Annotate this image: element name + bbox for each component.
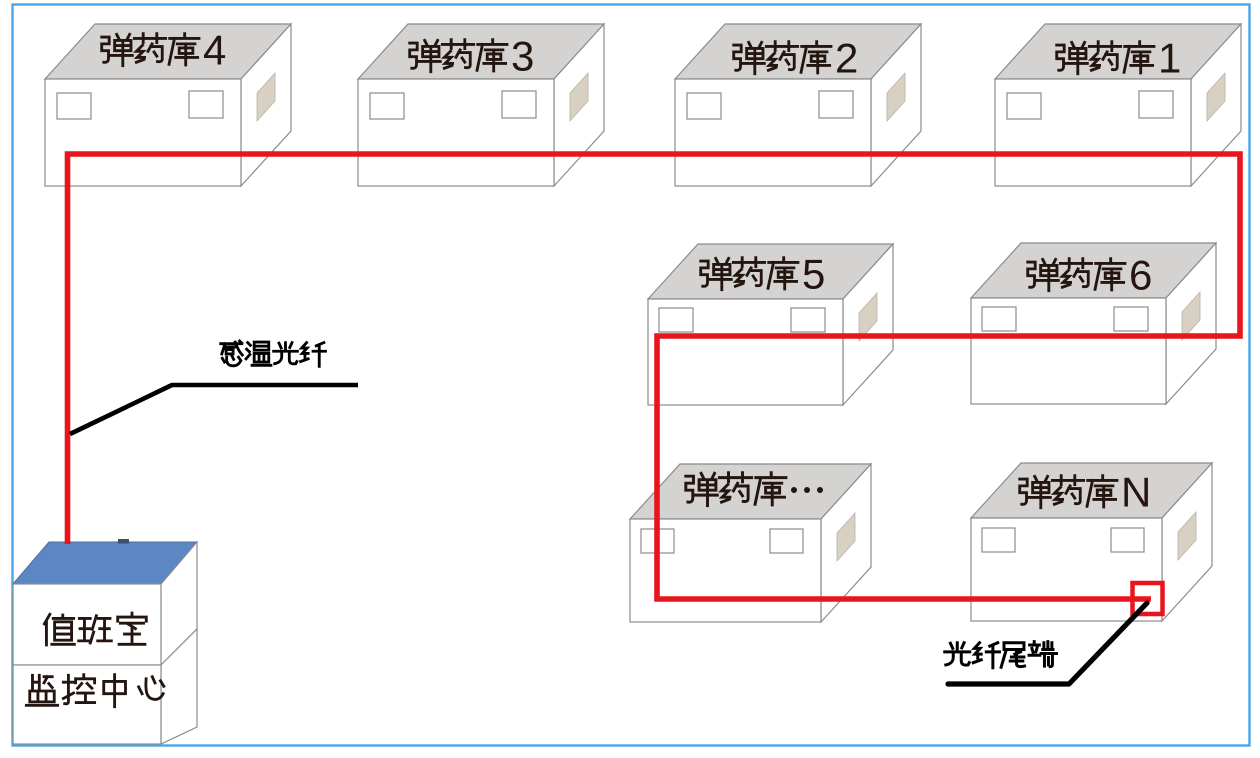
svg-text:1: 1 — [1158, 35, 1181, 82]
svg-text:6: 6 — [1129, 252, 1152, 299]
svg-text:N: N — [1121, 469, 1151, 516]
svg-text:4: 4 — [203, 27, 226, 74]
svg-text:3: 3 — [511, 33, 534, 80]
svg-text:2: 2 — [835, 35, 858, 82]
svg-text:5: 5 — [802, 251, 825, 298]
